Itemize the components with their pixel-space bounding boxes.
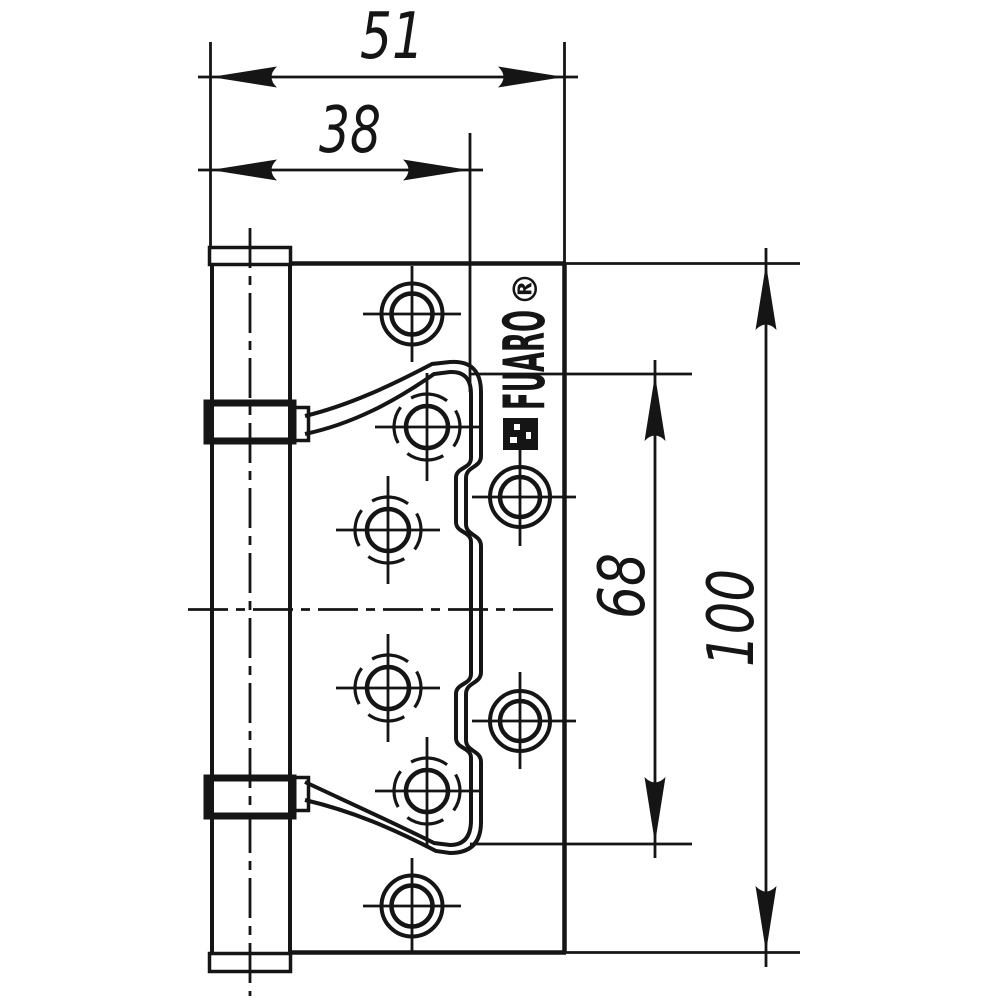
brand-logo-text: FUARO <box>492 310 558 410</box>
logo-mark-detail <box>526 432 531 439</box>
registered-trademark-symbol: ® <box>506 272 546 306</box>
logo-mark-square <box>503 418 538 450</box>
hinge-technical-drawing: 51 38 68 100 FUARO ® <box>0 0 1000 1000</box>
logo-mark-detail <box>510 437 517 443</box>
dimension-label-51: 51 <box>360 0 424 74</box>
brand-logo-mark-icon <box>503 418 538 450</box>
dimension-label-100: 100 <box>695 569 769 667</box>
technical-drawing-page: 51 38 68 100 FUARO ® <box>0 0 1000 1000</box>
dimension-label-68: 68 <box>586 553 660 619</box>
dimension-label-38: 38 <box>319 94 381 168</box>
logo-mark-detail <box>514 424 520 430</box>
